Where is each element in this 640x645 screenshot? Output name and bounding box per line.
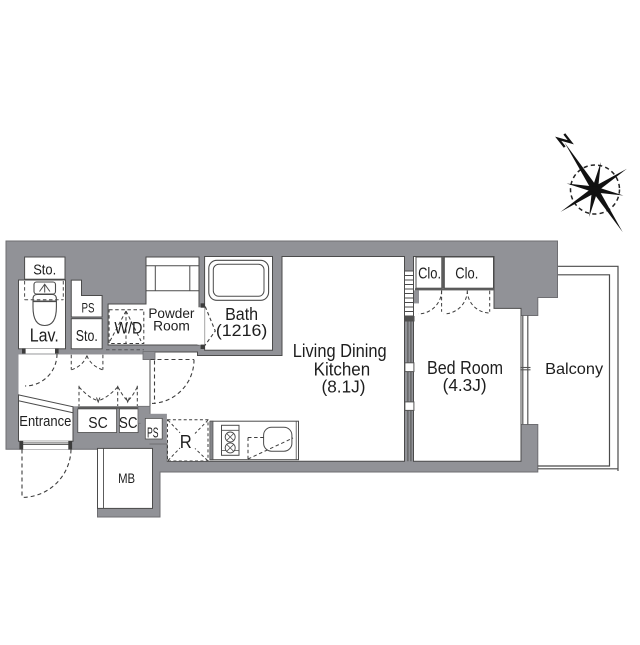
svg-text:Entrance: Entrance [19,413,71,430]
svg-text:MB: MB [118,471,135,486]
svg-text:PS: PS [147,425,159,442]
svg-text:(8.1J): (8.1J) [322,376,366,396]
svg-text:SC: SC [88,415,108,432]
svg-text:SC: SC [119,415,138,432]
svg-text:W/D: W/D [114,319,142,338]
svg-text:Lav.: Lav. [30,325,59,346]
svg-text:Sto.: Sto. [33,261,56,278]
svg-text:PS: PS [82,301,95,316]
svg-text:Room: Room [153,319,190,334]
svg-text:R: R [180,432,192,452]
svg-text:Living Dining: Living Dining [293,341,387,361]
svg-text:(4.3J): (4.3J) [443,375,487,395]
svg-text:Clo.: Clo. [418,266,441,283]
svg-text:(1216): (1216) [216,321,268,340]
svg-text:Clo.: Clo. [455,266,478,283]
svg-text:Sto.: Sto. [76,328,98,345]
svg-text:Balcony: Balcony [545,361,603,378]
